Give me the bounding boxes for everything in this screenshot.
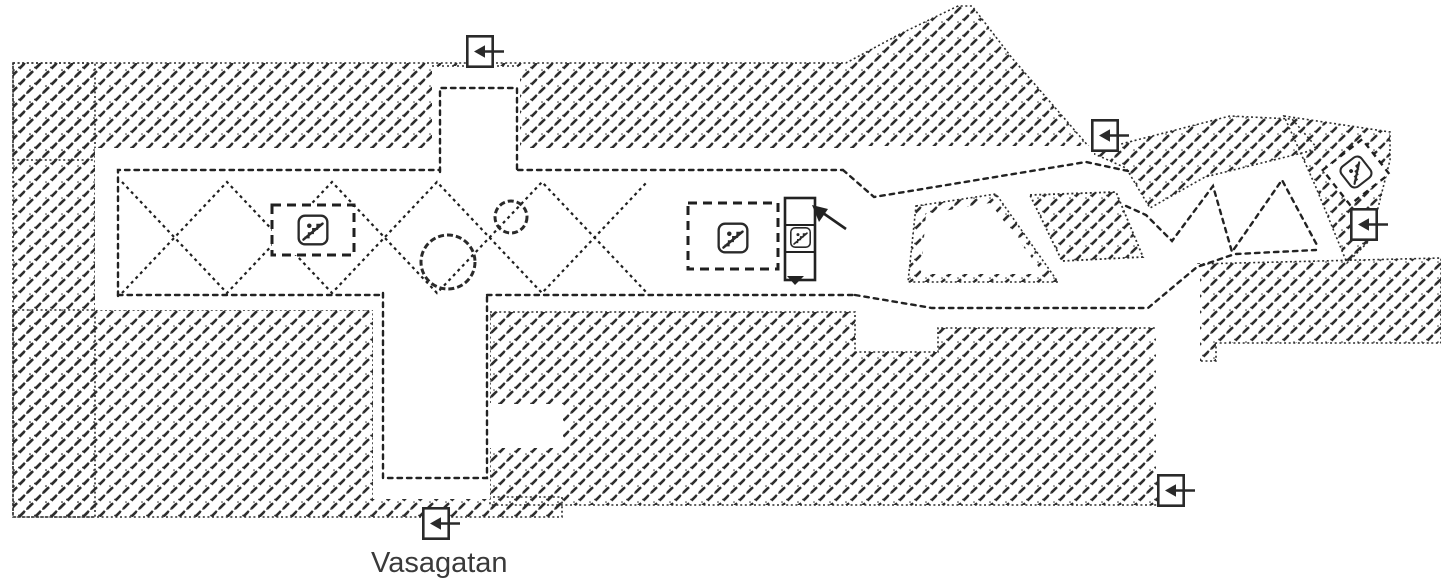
escalator-icon [299, 216, 328, 245]
escalator-icon [791, 228, 810, 247]
hatched-parallelogram-structure [1030, 192, 1143, 261]
ground-bottom-middle-block [490, 312, 1158, 505]
station-map: Vasagatan [0, 0, 1441, 581]
northeast-passage-top [856, 146, 1094, 162]
exit-icon-far-right [1351, 209, 1388, 239]
ground-lower-right-band [1198, 258, 1441, 361]
escalator-icon [719, 224, 748, 253]
station-map-canvas: Vasagatan [0, 0, 1441, 581]
street-label: Vasagatan [371, 547, 508, 579]
mid-right-structures [908, 192, 1143, 282]
escalator-area-west [272, 205, 354, 255]
south-corridor-notch [483, 404, 563, 448]
ground-upper-right-wedge [1090, 116, 1318, 208]
north-corridor [432, 66, 520, 152]
exit-icon-top [467, 36, 504, 66]
escalator-area-east [688, 203, 778, 269]
ground-top-band-and-hill [13, 6, 1090, 160]
south-corridor [373, 308, 490, 499]
exit-icon-lower-right [1158, 475, 1195, 505]
